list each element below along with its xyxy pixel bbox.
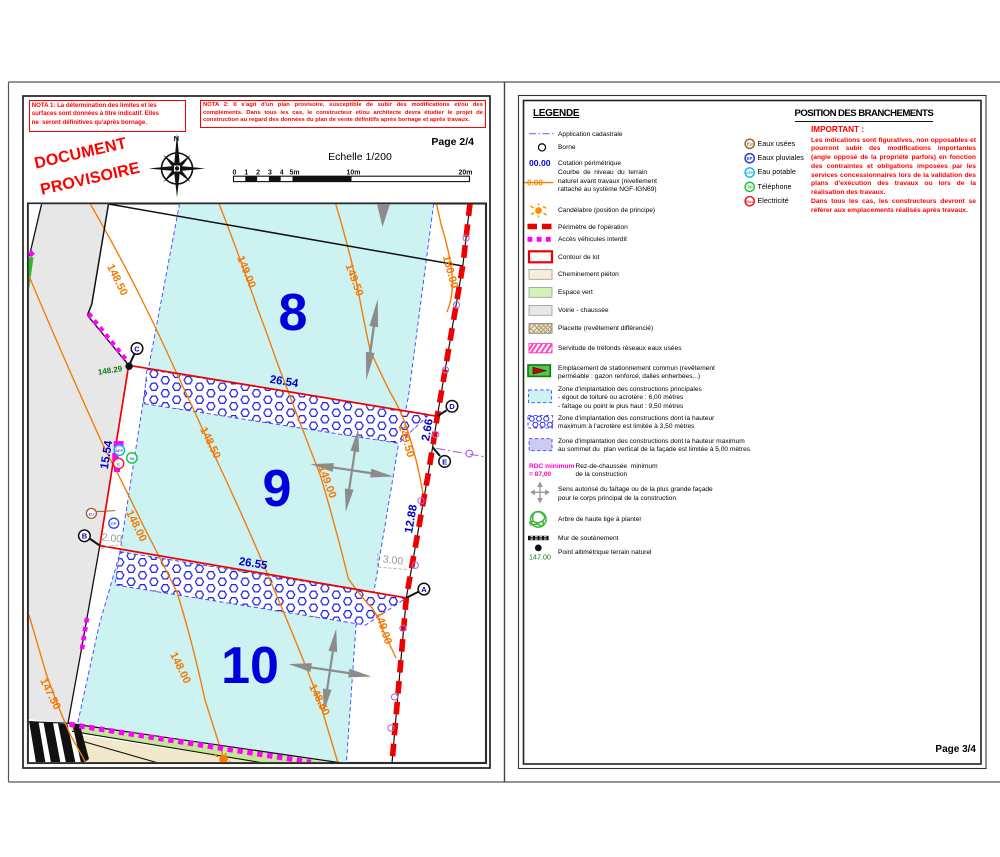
svg-text:EP: EP	[747, 156, 753, 161]
svg-text:Tel: Tel	[747, 185, 753, 190]
svg-text:3.00: 3.00	[382, 553, 404, 567]
svg-text:9: 9	[263, 460, 292, 518]
svg-text:EP: EP	[111, 521, 117, 526]
svg-text:AEP: AEP	[115, 448, 123, 453]
svg-text:N: N	[174, 134, 179, 143]
svg-text:EU: EU	[89, 511, 95, 516]
svg-text:147.00: 147.00	[529, 552, 551, 561]
svg-text:149.00: 149.00	[372, 610, 394, 646]
svg-text:Tel: Tel	[129, 456, 134, 461]
svg-text:10: 10	[221, 637, 279, 695]
svg-text:E: E	[442, 457, 447, 466]
svg-text:A: A	[421, 585, 427, 594]
svg-text:3: 3	[268, 170, 272, 177]
svg-text:EU: EU	[747, 141, 753, 146]
svg-text:1: 1	[244, 170, 248, 177]
svg-text:20m: 20m	[458, 170, 472, 177]
svg-text:4: 4	[280, 170, 284, 177]
svg-text:B: B	[82, 532, 88, 541]
svg-text:D: D	[449, 402, 455, 411]
svg-text:2.00: 2.00	[101, 531, 123, 545]
svg-text:8: 8	[279, 284, 308, 342]
svg-text:E: E	[117, 462, 120, 467]
svg-text:12.88: 12.88	[403, 503, 420, 534]
svg-text:2: 2	[256, 170, 260, 177]
svg-text:0.00: 0.00	[527, 179, 543, 188]
svg-text:10m: 10m	[346, 170, 360, 177]
svg-text:0: 0	[233, 170, 237, 177]
svg-text:5m: 5m	[289, 170, 299, 177]
svg-text:150.00: 150.00	[440, 254, 460, 290]
svg-text:AEP: AEP	[746, 171, 754, 175]
svg-text:00.00: 00.00	[529, 158, 551, 168]
svg-text:Elec: Elec	[746, 200, 753, 204]
svg-text:C: C	[134, 344, 140, 353]
